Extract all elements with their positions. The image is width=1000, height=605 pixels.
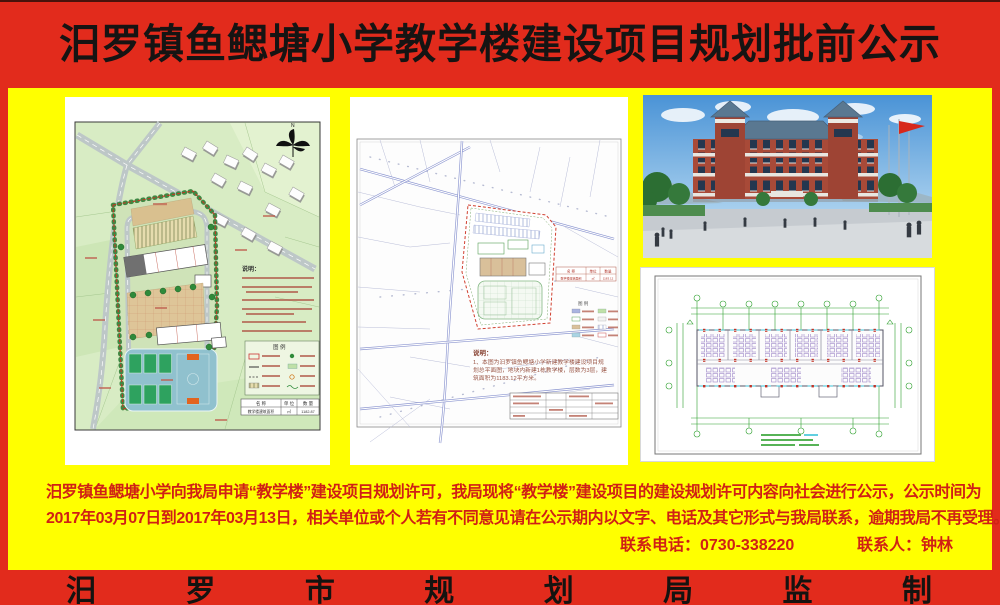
svg-text:1183.12: 1183.12 bbox=[603, 277, 614, 281]
svg-text:图 例: 图 例 bbox=[273, 343, 286, 351]
svg-text:说明：: 说明： bbox=[242, 265, 260, 273]
svg-text:㎡: ㎡ bbox=[287, 409, 291, 414]
notice-line-2: 2017年03月07日到2017年03月13日，相关单位或个人若有不同意见请在公… bbox=[46, 504, 1000, 528]
svg-text:单位: 单位 bbox=[589, 269, 597, 274]
floor-plan-drawing bbox=[641, 268, 934, 461]
left-tower bbox=[711, 101, 749, 199]
svg-text:N: N bbox=[291, 123, 295, 129]
title-block bbox=[510, 393, 618, 419]
svg-text:名 称: 名 称 bbox=[567, 269, 576, 274]
public-notice-poster: 汨罗镇鱼鳃塘小学教学楼建设项目规划批前公示 bbox=[0, 0, 1000, 605]
contact-phone: 联系电话：0730-338220 bbox=[620, 531, 794, 555]
entrance-canopy bbox=[771, 191, 803, 197]
svg-text:划总平面图，地块内新建1栋教学楼，层数为3层，建: 划总平面图，地块内新建1栋教学楼，层数为3层，建 bbox=[473, 366, 607, 374]
sports-field bbox=[478, 281, 542, 319]
right-tower bbox=[824, 101, 862, 199]
school-site bbox=[113, 191, 226, 411]
svg-text:图 例: 图 例 bbox=[578, 300, 589, 307]
svg-text:教学楼建筑面积: 教学楼建筑面积 bbox=[560, 276, 581, 281]
page-title: 汨罗镇鱼鳃塘小学教学楼建设项目规划批前公示 bbox=[0, 0, 1000, 84]
svg-text:说明：: 说明： bbox=[473, 348, 493, 357]
site-plan-drawing: N 说明： 图 例 bbox=[65, 97, 330, 465]
left-red-stripe bbox=[0, 86, 8, 570]
legend-box: 图 例 bbox=[245, 341, 319, 395]
footer-issuer: 汨罗市规划局监制 bbox=[66, 571, 932, 604]
svg-text:数 量: 数 量 bbox=[303, 400, 314, 407]
svg-text:数量: 数量 bbox=[604, 269, 612, 274]
svg-text:筑面积为1183.12平方米。: 筑面积为1183.12平方米。 bbox=[473, 374, 540, 382]
site-plan-panel: N 说明： 图 例 bbox=[65, 97, 330, 465]
floor-plan-panel bbox=[640, 267, 935, 462]
notice-line-1: 汨罗镇鱼鳃塘小学向我局申请“教学楼”建设项目规划许可，我局现将“教学楼”建设项目… bbox=[46, 478, 981, 502]
svg-text:教学楼建筑面积: 教学楼建筑面积 bbox=[248, 409, 275, 414]
svg-text:㎡: ㎡ bbox=[591, 276, 594, 281]
rendering-photo bbox=[643, 95, 932, 258]
svg-text:1182.87: 1182.87 bbox=[301, 410, 314, 414]
center-roof bbox=[731, 121, 841, 139]
contact-person: 联系人：钟林 bbox=[857, 531, 953, 555]
teaching-building bbox=[480, 258, 526, 276]
svg-text:1、本图为汨罗镇鱼鳃塘小学新建教学楼建设项目规: 1、本图为汨罗镇鱼鳃塘小学新建教学楼建设项目规 bbox=[473, 358, 604, 366]
indicator-table: 名 称 单位 数量 教学楼建筑面积 ㎡ 1183.12 bbox=[556, 267, 616, 281]
svg-text:名 称: 名 称 bbox=[256, 400, 267, 407]
svg-text:单 位: 单 位 bbox=[284, 400, 295, 407]
planning-map-panel: 名 称 单位 数量 教学楼建筑面积 ㎡ 1183.12 图 例 bbox=[350, 97, 628, 465]
right-red-stripe bbox=[992, 86, 1000, 570]
planning-map-drawing: 名 称 单位 数量 教学楼建筑面积 ㎡ 1183.12 图 例 bbox=[350, 97, 628, 465]
indicator-table: 名 称 单 位 数 量 教学楼建筑面积 ㎡ 1182.87 bbox=[241, 399, 319, 415]
school-site bbox=[462, 205, 556, 329]
